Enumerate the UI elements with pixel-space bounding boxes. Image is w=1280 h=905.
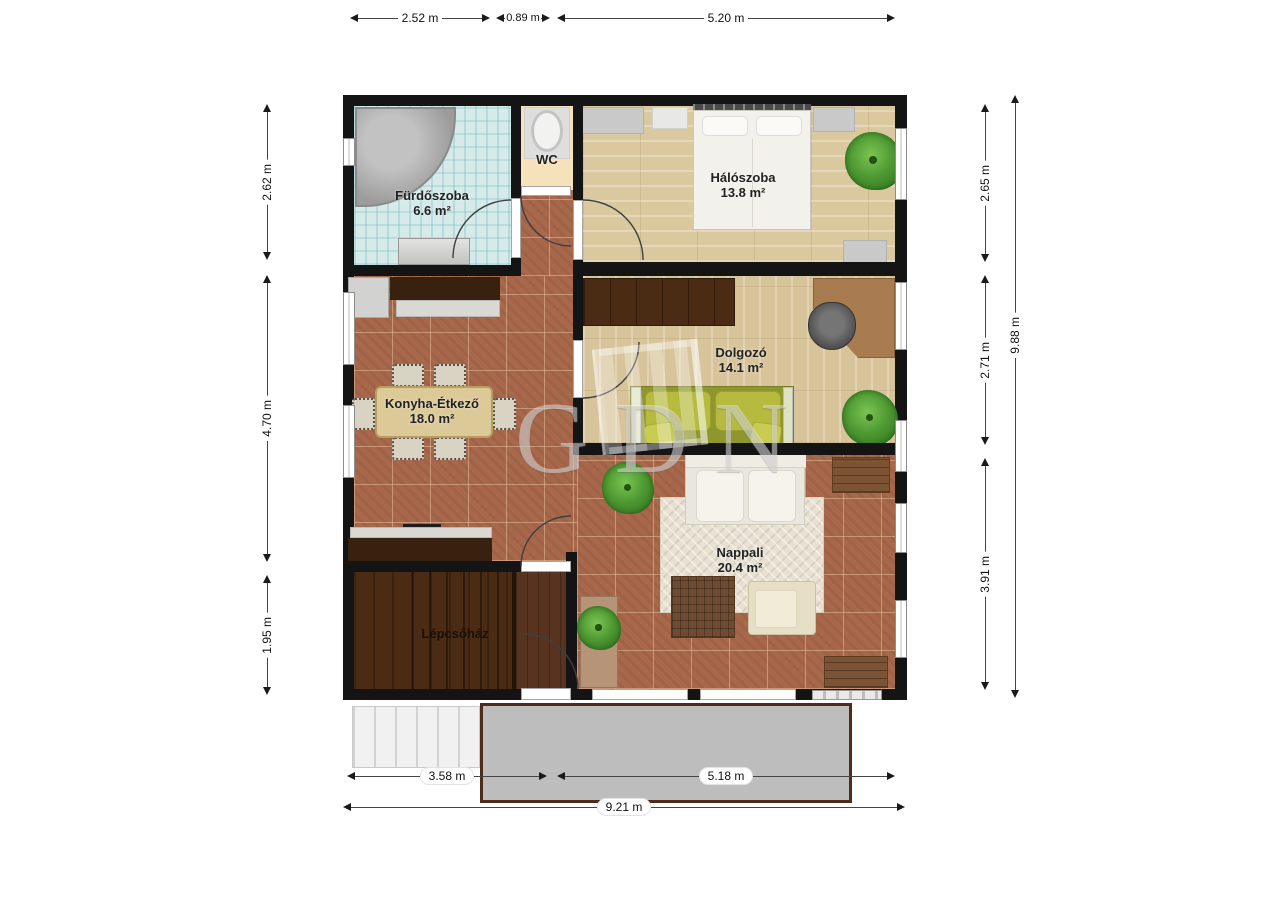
arrow-up-icon <box>263 575 271 583</box>
dim-label: 4.70 m <box>260 396 274 441</box>
door-arc <box>521 196 571 246</box>
arrow-left-icon <box>557 14 565 22</box>
dim-bottom-1: 3.58 m <box>347 769 547 783</box>
room-label-furdoszoba: Fürdőszoba 6.6 m² <box>395 188 469 218</box>
arrow-left-icon <box>343 803 351 811</box>
room-area: 13.8 m² <box>710 185 775 200</box>
dim-label: 9.88 m <box>1008 313 1022 358</box>
door-arc <box>523 634 578 689</box>
dim-label: 1.95 m <box>260 613 274 658</box>
room-name: Fürdőszoba <box>395 188 469 203</box>
arrow-right-icon <box>887 14 895 22</box>
room-name: Lépcsőház <box>421 626 488 641</box>
room-name: Dolgozó <box>715 345 766 360</box>
dim-label: 5.20 m <box>704 11 749 25</box>
arrow-down-icon <box>263 554 271 562</box>
door-arc <box>583 200 643 260</box>
arrow-up-icon <box>981 458 989 466</box>
room-name: Konyha-Étkező <box>385 396 479 411</box>
arrow-up-icon <box>981 104 989 112</box>
arrow-down-icon <box>981 682 989 690</box>
arrow-down-icon <box>981 437 989 445</box>
arrow-right-icon <box>539 772 547 780</box>
dim-right-1: 2.65 m <box>978 104 992 262</box>
arrow-left-icon <box>557 772 565 780</box>
arrow-left-icon <box>350 14 358 22</box>
arrow-left-icon <box>496 14 504 22</box>
room-area: 14.1 m² <box>715 360 766 375</box>
dim-label: 3.58 m <box>420 767 475 785</box>
dim-label: 2.52 m <box>398 11 443 25</box>
dim-top-3: 5.20 m <box>557 11 895 25</box>
dim-left-1: 2.62 m <box>260 104 274 260</box>
arrow-right-icon <box>542 14 550 22</box>
arrow-down-icon <box>1011 690 1019 698</box>
room-label-haloszoba: Hálószoba 13.8 m² <box>710 170 775 200</box>
room-label-nappali: Nappali 20.4 m² <box>717 545 764 575</box>
room-name: Hálószoba <box>710 170 775 185</box>
arrow-up-icon <box>981 275 989 283</box>
floorplan-canvas: Fürdőszoba 6.6 m² WC Hálószoba 13.8 m² D… <box>0 0 1280 905</box>
arrow-right-icon <box>887 772 895 780</box>
dim-label: 2.65 m <box>978 161 992 206</box>
room-label-wc: WC <box>536 152 558 167</box>
arrow-right-icon <box>897 803 905 811</box>
dim-label: 2.62 m <box>260 160 274 205</box>
arrow-down-icon <box>263 252 271 260</box>
dim-left-2: 4.70 m <box>260 275 274 562</box>
arrow-left-icon <box>347 772 355 780</box>
dim-label: 0.89 m <box>505 12 541 24</box>
dim-bottom-total: 9.21 m <box>343 800 905 814</box>
room-area: 18.0 m² <box>385 411 479 426</box>
door-arc <box>521 516 571 566</box>
dim-left-3: 1.95 m <box>260 575 274 695</box>
dim-label: 3.91 m <box>978 552 992 597</box>
dim-right-2: 2.71 m <box>978 275 992 445</box>
arrow-down-icon <box>981 254 989 262</box>
dim-right-total: 9.88 m <box>1008 95 1022 698</box>
room-name: Nappali <box>717 545 764 560</box>
door-arc <box>583 342 639 398</box>
dim-right-3: 3.91 m <box>978 458 992 690</box>
room-label-lepcsohaz: Lépcsőház <box>421 626 488 641</box>
dim-bottom-2: 5.18 m <box>557 769 895 783</box>
arrow-up-icon <box>263 104 271 112</box>
arrow-up-icon <box>263 275 271 283</box>
dim-top-2: 0.89 m <box>496 11 550 25</box>
dim-label: 5.18 m <box>699 767 754 785</box>
room-area: 6.6 m² <box>395 203 469 218</box>
room-label-dolgozo: Dolgozó 14.1 m² <box>715 345 766 375</box>
arrow-down-icon <box>263 687 271 695</box>
arrow-up-icon <box>1011 95 1019 103</box>
room-label-konyha-etkezo: Konyha-Étkező 18.0 m² <box>385 396 479 426</box>
room-name: WC <box>536 152 558 167</box>
room-area: 20.4 m² <box>717 560 764 575</box>
arrow-right-icon <box>482 14 490 22</box>
dim-label: 2.71 m <box>978 338 992 383</box>
dim-top-1: 2.52 m <box>350 11 490 25</box>
dim-label: 9.21 m <box>597 798 652 816</box>
